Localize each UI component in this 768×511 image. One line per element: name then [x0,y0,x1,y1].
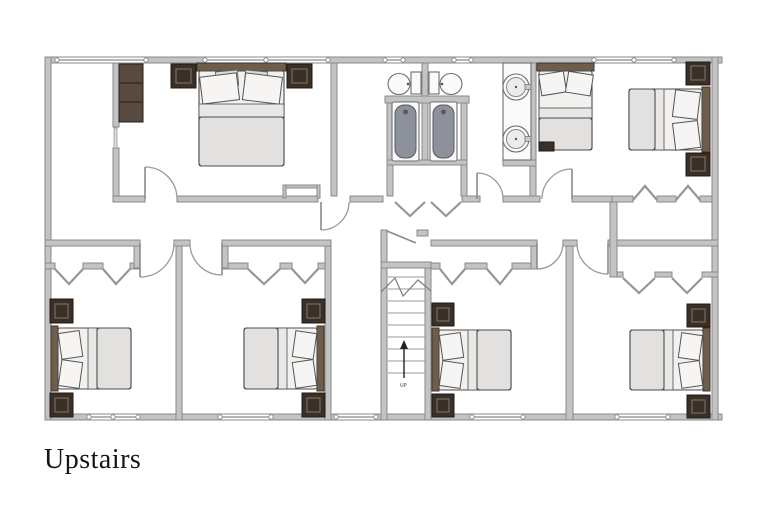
bifold-door-icon [676,186,700,200]
window-icon [334,415,378,420]
door-icon [140,243,174,277]
floor-label: Upstairs [44,444,141,476]
stair-up-arrow: UP [400,340,408,389]
wardrobe-icon [119,64,143,122]
bed-icon [630,328,710,391]
bifold-door-icon [431,202,461,216]
toilet-icon [429,72,462,95]
nightstand-icon [686,62,710,85]
window-icon [55,58,148,63]
nightstand-icon [302,299,325,323]
door-icon [190,243,222,275]
bed-icon [629,87,710,152]
nightstand-icon [50,393,73,417]
door-icon [145,167,177,199]
toilet-icon [388,72,421,95]
bathtub-icon [430,102,457,161]
door-icon [321,202,349,230]
door-icon [537,243,563,269]
bifold-door-icon [103,269,130,284]
interior-walls [45,63,718,420]
window-icon [470,415,525,420]
bench-icon [539,142,554,151]
bifold-door-icon [633,186,657,200]
door-icon [477,173,503,199]
bifold-door-icon [395,202,425,216]
bed-icon [51,326,131,391]
bifold-door-icon [440,269,465,284]
nightstand-icon [432,303,454,326]
stair-break-line [381,278,431,296]
bifold-door-icon [248,269,280,284]
master-bed-icon [197,63,286,166]
closet-door-leaf-icon [114,128,117,148]
window-icon [218,415,273,420]
bifold-door-icon [487,269,512,284]
bathtub-icon [392,102,419,161]
nightstand-icon [302,393,325,417]
floor-plan-drawing: UP [0,0,768,511]
floor-plan-sheet: UP [0,0,768,511]
bifold-door-icon [55,269,83,284]
stair-door-icon [387,231,416,243]
bed-icon [432,328,511,391]
staircase: UP [381,277,431,389]
stair-direction-label: UP [400,383,407,389]
nightstand-icon [687,304,710,327]
nightstand-icon [432,394,454,417]
nightstand-icon [686,153,710,176]
nightstand-icon [287,64,312,88]
nightstand-icon [687,395,710,418]
window-icon [452,58,473,63]
bed-icon [244,326,324,391]
bifold-door-icon [292,269,318,283]
window-icon [203,58,330,63]
vanity-counter [503,63,531,160]
window-icon [615,415,670,420]
window-icon [592,58,676,63]
window-icon [87,415,140,420]
nightstand-icon [50,299,73,323]
bifold-door-icon [623,278,655,293]
door-icon [577,243,608,274]
bifold-door-icon [672,278,702,293]
nightstand-icon [171,64,196,88]
bed-icon [537,63,594,151]
window-icon [383,58,405,63]
door-icon [542,169,572,199]
